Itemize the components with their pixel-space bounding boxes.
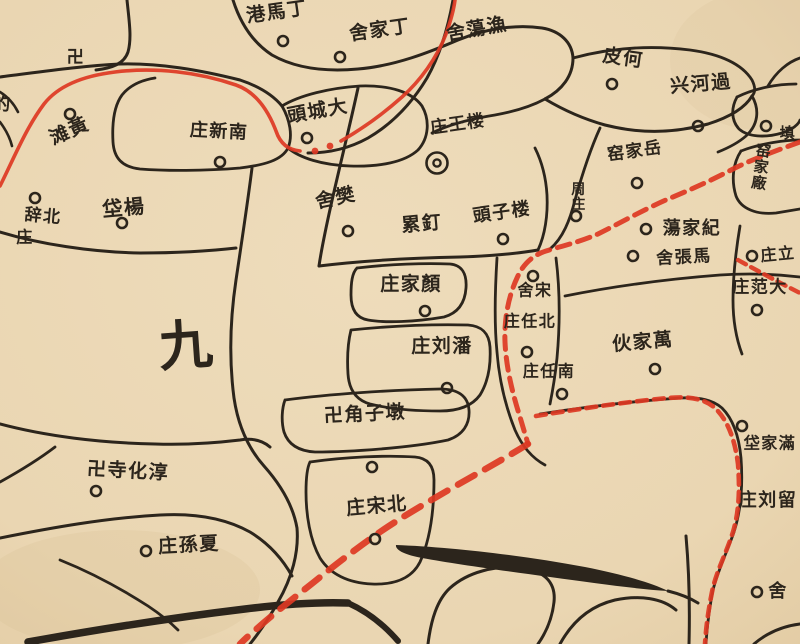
place-name-label: 填 xyxy=(780,124,797,142)
place-name-label: 垈家滿 xyxy=(743,434,797,453)
red-route-dot xyxy=(327,143,334,150)
place-name-label: 庄任南 xyxy=(523,362,576,381)
place-name-label: 舍宋 xyxy=(516,281,552,300)
place-name-label: 庄任北 xyxy=(504,312,557,331)
place-name-label: 舍 xyxy=(768,580,788,602)
place-name-label: 庄立 xyxy=(760,243,797,265)
place-name-label: 庄刘潘 xyxy=(411,334,473,357)
place-name-label: 垈楊 xyxy=(100,194,146,222)
place-name-label: 辞北 xyxy=(24,204,63,228)
red-route-dot xyxy=(312,148,319,155)
historical-map-sheet: 港馬丁舍家丁舍蕩漁皮何兴河過頭城大庄新南滩黃辞北庄垈楊舍樊累釘頭子楼庄王楼窑家岳… xyxy=(0,0,800,644)
place-name-label: 舍張馬 xyxy=(656,245,713,269)
place-name-label: 卍 xyxy=(67,48,86,68)
place-name-label: 庄 xyxy=(16,228,34,247)
map-canvas: 港馬丁舍家丁舍蕩漁皮何兴河過頭城大庄新南滩黃辞北庄垈楊舍樊累釘頭子楼庄王楼窑家岳… xyxy=(0,0,800,644)
place-name-label: 卍角子墩 xyxy=(323,400,406,427)
place-name-label: 庄刘留 xyxy=(739,489,798,511)
place-name-label: 卍寺化淳 xyxy=(87,457,170,484)
place-name-label: 周庄 xyxy=(571,182,587,213)
place-name-label: 庄新南 xyxy=(189,118,249,143)
place-name-label: 庄家顏 xyxy=(380,272,442,295)
place-name-label: 蕩家紀 xyxy=(663,217,722,239)
place-name-label: 庄孫夏 xyxy=(158,531,221,557)
district-number-numeral: 九 xyxy=(156,311,214,379)
place-name-label: 累釘 xyxy=(400,210,443,236)
place-name-label: 庄范大 xyxy=(732,277,788,298)
place-name-label: 的 xyxy=(0,93,12,115)
district-numeral-layer: 九 xyxy=(156,311,214,379)
